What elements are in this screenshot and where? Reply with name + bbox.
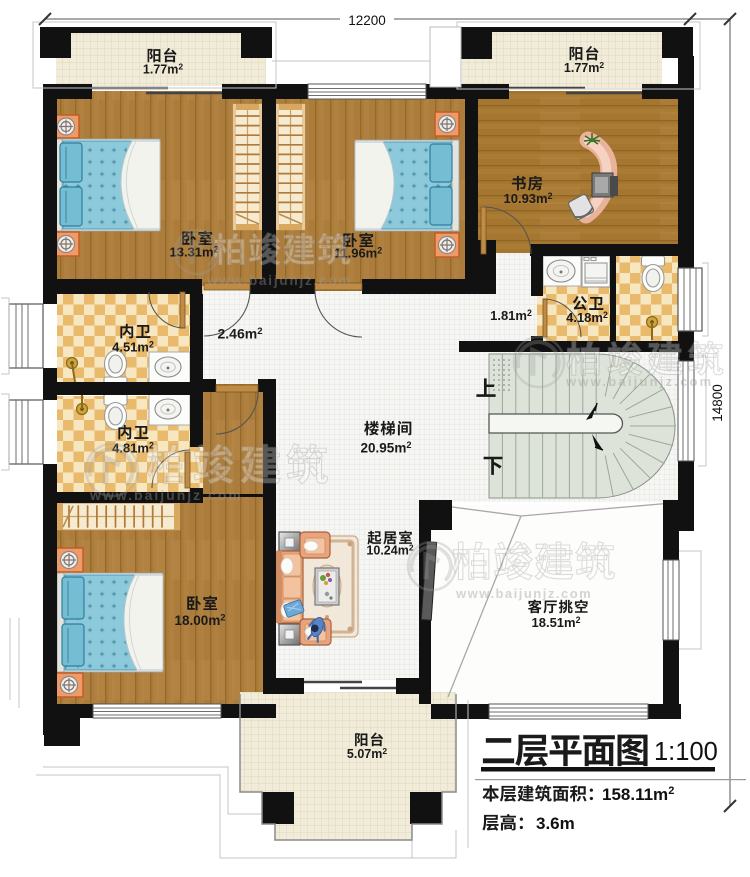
- svg-text:www.baijunjz.com: www.baijunjz.com: [89, 487, 243, 503]
- svg-text:10.93m2: 10.93m2: [504, 191, 553, 206]
- svg-text:12200: 12200: [348, 13, 386, 28]
- svg-text:www.baijunjz.com: www.baijunjz.com: [455, 586, 592, 601]
- svg-text:20.95m2: 20.95m2: [361, 440, 412, 455]
- svg-text:18.51m2: 18.51m2: [532, 615, 581, 630]
- svg-text:4.18m2: 4.18m2: [566, 310, 608, 325]
- svg-text:14800: 14800: [710, 384, 725, 422]
- svg-text:10.24m2: 10.24m2: [366, 543, 413, 558]
- svg-text:158.11m2: 158.11m2: [602, 785, 674, 804]
- svg-text:1:100: 1:100: [654, 738, 718, 766]
- svg-text:5.07m2: 5.07m2: [347, 746, 387, 761]
- svg-text:2.46m2: 2.46m2: [218, 326, 263, 342]
- svg-text:1.77m2: 1.77m2: [143, 62, 183, 77]
- svg-text:4.51m2: 4.51m2: [112, 339, 154, 354]
- svg-text:18.00m2: 18.00m2: [175, 613, 226, 628]
- svg-text:3.6m: 3.6m: [536, 814, 575, 833]
- svg-text:1.81m2: 1.81m2: [490, 308, 532, 323]
- svg-text:www.baijunjz.com: www.baijunjz.com: [565, 374, 713, 389]
- svg-text:1.77m2: 1.77m2: [564, 60, 604, 75]
- svg-text:www.baijunjz.com: www.baijunjz.com: [206, 273, 352, 288]
